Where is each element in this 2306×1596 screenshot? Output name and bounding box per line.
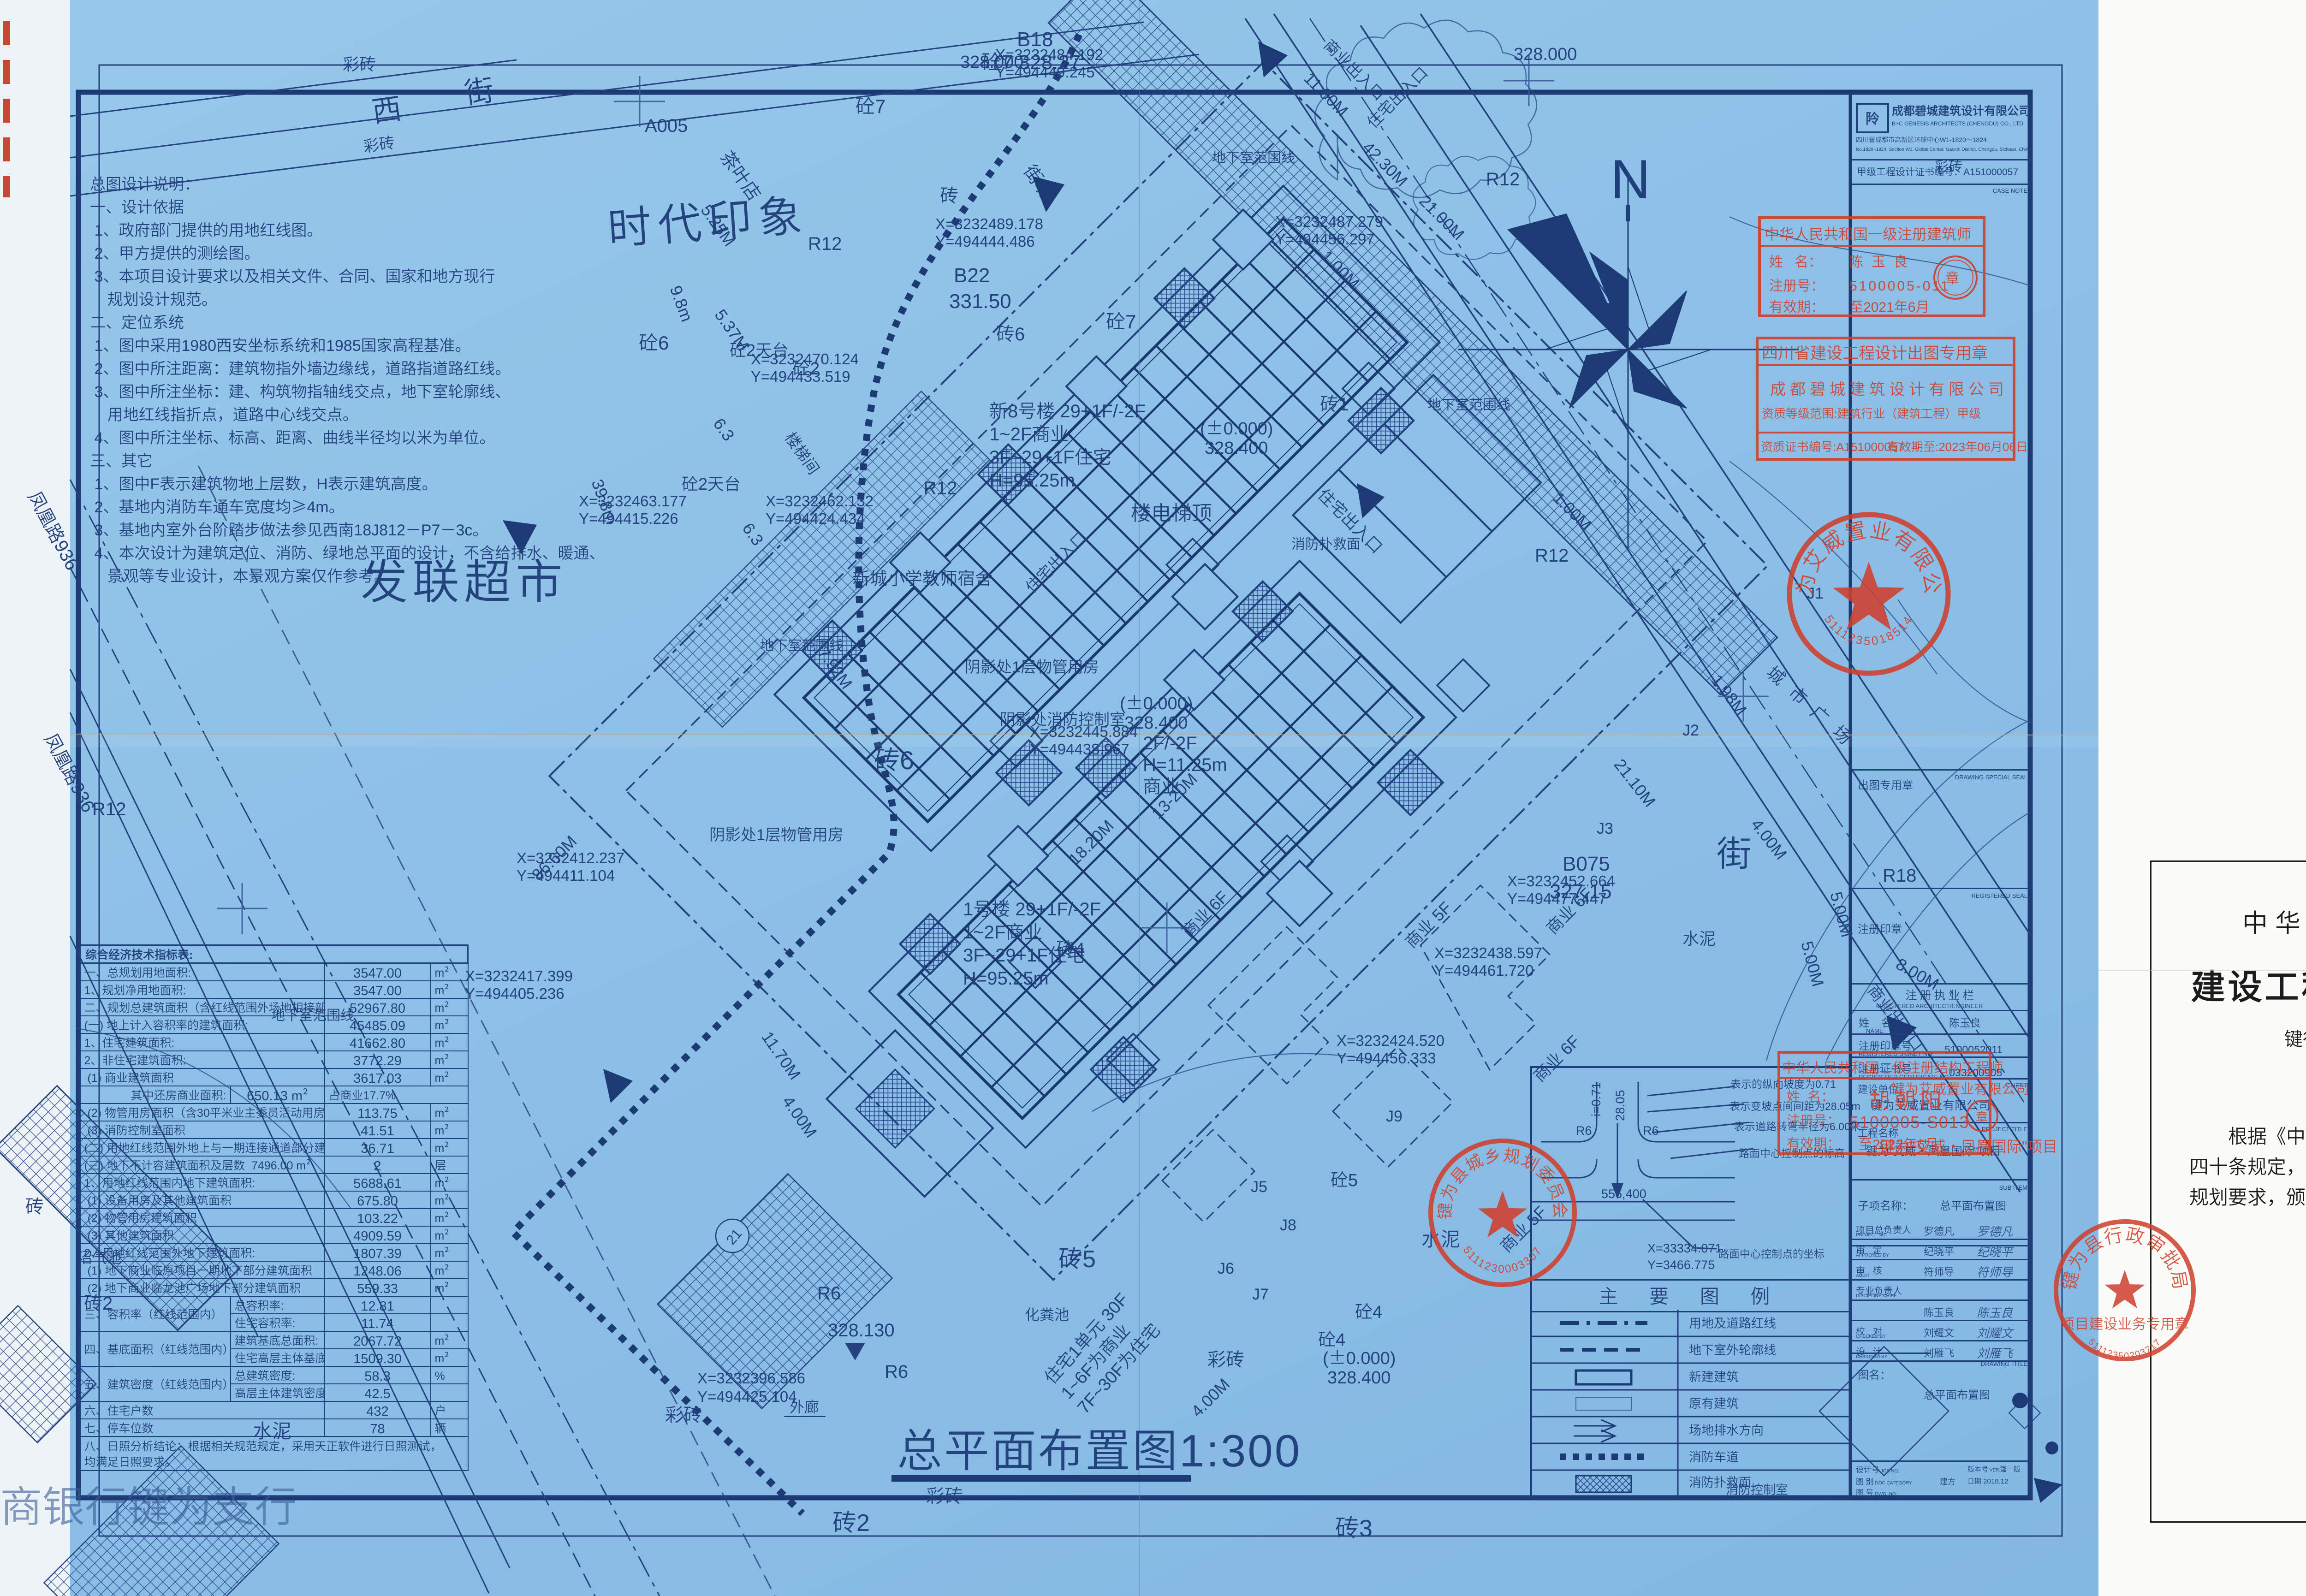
svg-text:姓 名：: 姓 名： (1787, 1086, 1834, 1105)
svg-text:资质等级范围:建筑行业（建筑工程）甲级: 资质等级范围:建筑行业（建筑工程）甲级 (1762, 404, 1981, 421)
svg-text:项目建设业务专用章: 项目建设业务专用章 (2061, 1312, 2189, 1333)
svg-text:章: 章 (1945, 267, 1959, 287)
svg-text:中华人民共和国二级注册结构工程师: 中华人民共和国二级注册结构工程师 (1782, 1056, 2003, 1077)
svg-text:注册号：: 注册号： (1769, 274, 1825, 295)
svg-text:四川省建设工程设计出图专用章: 四川省建设工程设计出图专用章 (1762, 340, 1988, 364)
svg-text:5111235018514: 5111235018514 (1821, 611, 1917, 649)
svg-text:注册号：: 注册号： (1787, 1110, 1840, 1129)
svg-text:键为"艾威·凤凰国际"项目: 键为"艾威·凤凰国际"项目 (1879, 1134, 2057, 1157)
svg-text:章: 章 (1976, 1108, 1988, 1125)
svg-text:陈玉良: 陈玉良 (1849, 250, 1916, 271)
svg-text:资质证书编号:A151000057: 资质证书编号:A151000057 (1761, 438, 1904, 455)
svg-text:5100005-S013: 5100005-S013 (1849, 1109, 1969, 1133)
svg-text:姓 名：: 姓 名： (1769, 250, 1822, 271)
svg-text:键为艾威置业有限公司: 键为艾威置业有限公司 (0, 0, 1950, 597)
svg-text:有效期至:2023年06月06日: 有效期至:2023年06月06日 (1887, 438, 2028, 455)
svg-text:5111230003307: 5111230003307 (1460, 1242, 1545, 1276)
svg-text:有效期：: 有效期： (1787, 1133, 1840, 1152)
svg-text:成都碧城建筑设计有限公司: 成都碧城建筑设计有限公司 (1770, 377, 2008, 399)
svg-text:至2021年6月: 至2021年6月 (1849, 296, 1929, 316)
svg-text:键为艾威置业有限公司: 键为艾威置业有限公司 (1891, 1078, 2029, 1098)
svg-text:中华人民共和国一级注册建筑师: 中华人民共和国一级注册建筑师 (1765, 223, 1971, 244)
svg-text:51112350203717: 51112350203717 (2086, 1335, 2164, 1362)
svg-text:有效期：: 有效期： (1769, 296, 1825, 316)
